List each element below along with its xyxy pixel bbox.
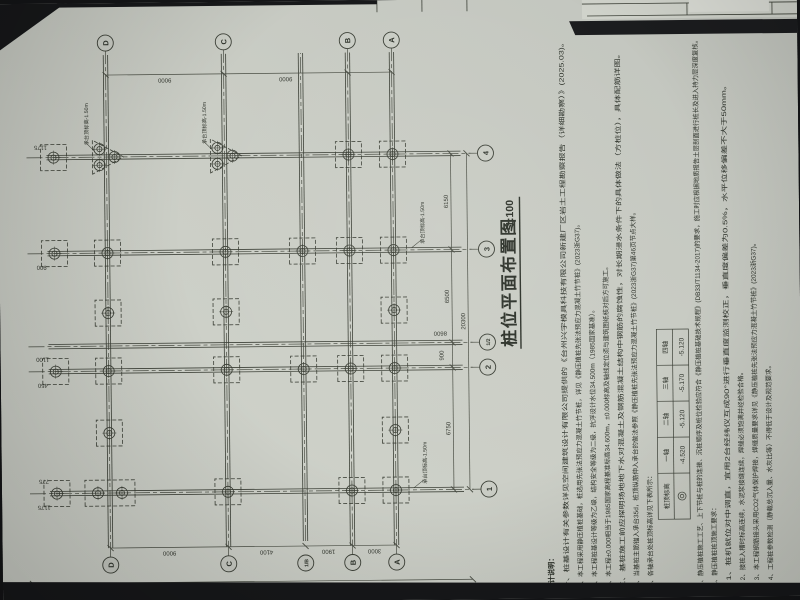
svg-text:1/B: 1/B bbox=[304, 559, 310, 567]
svg-text:D: D bbox=[101, 40, 110, 46]
table-col-header: 二轴 bbox=[661, 412, 670, 426]
svg-text:1100: 1100 bbox=[35, 356, 49, 362]
svg-text:B: B bbox=[343, 37, 352, 43]
table-cell: -5.120 bbox=[678, 337, 685, 356]
table-col-header: 四轴 bbox=[660, 340, 669, 354]
svg-text:775: 775 bbox=[38, 478, 49, 484]
svg-text:B: B bbox=[349, 559, 358, 565]
svg-text:C: C bbox=[225, 560, 234, 566]
axis-bubble-label: 2 bbox=[484, 365, 493, 369]
svg-text:D: D bbox=[107, 562, 116, 568]
dim-text: 6500 bbox=[445, 289, 451, 303]
table-col-header: 一轴 bbox=[662, 448, 671, 462]
drawing-title: 桩位平面布置图 1:100 bbox=[498, 197, 521, 349]
svg-text:9000: 9000 bbox=[162, 549, 176, 555]
axis-bubble-label: 1 bbox=[485, 487, 494, 491]
svg-text:C: C bbox=[219, 38, 228, 44]
svg-text:4100: 4100 bbox=[259, 548, 273, 554]
dim-text: 6150 bbox=[444, 194, 450, 208]
table-cell: -4.520 bbox=[680, 445, 687, 464]
axis-bubble-label: 1/2 bbox=[486, 338, 492, 345]
svg-text:A: A bbox=[393, 559, 402, 565]
svg-text:9000: 9000 bbox=[278, 75, 292, 81]
axis-bubble-label: 3 bbox=[482, 247, 491, 251]
svg-text:900: 900 bbox=[36, 264, 47, 270]
axis-bubble-label: 4 bbox=[481, 150, 490, 155]
svg-text:450: 450 bbox=[37, 382, 48, 388]
table-cell: -5.170 bbox=[679, 373, 686, 392]
svg-text:3000: 3000 bbox=[367, 547, 381, 553]
dim-text: 6750 bbox=[446, 421, 452, 435]
dim-text: 20300 bbox=[461, 312, 467, 329]
dim-text: 900 bbox=[440, 350, 446, 361]
table-cell: -5.120 bbox=[679, 409, 686, 428]
drawing-scale: 1:100 bbox=[504, 200, 516, 227]
table-col-header: 三轴 bbox=[661, 376, 670, 390]
drawing-title-text: 桩位平面布置图 bbox=[498, 217, 519, 347]
svg-text:1175: 1175 bbox=[37, 504, 51, 510]
dim-text: 8600 bbox=[433, 330, 447, 336]
svg-text:1175: 1175 bbox=[33, 144, 47, 150]
photo-of-drawing: 承台顶标高-1.50m 承台顶标高-1.50m 承台顶标高-1.50m 承台顶标… bbox=[0, 0, 800, 600]
svg-text:9000: 9000 bbox=[157, 76, 171, 82]
drawing-sheet-svg: 承台顶标高-1.50m 承台顶标高-1.50m 承台顶标高-1.50m 承台顶标… bbox=[0, 0, 800, 600]
svg-text:A: A bbox=[387, 37, 396, 43]
drawing-sheet: 承台顶标高-1.50m 承台顶标高-1.50m 承台顶标高-1.50m 承台顶标… bbox=[0, 0, 800, 600]
table-row-header: 桩顶标高 bbox=[662, 483, 671, 510]
svg-text:1900: 1900 bbox=[321, 548, 335, 554]
